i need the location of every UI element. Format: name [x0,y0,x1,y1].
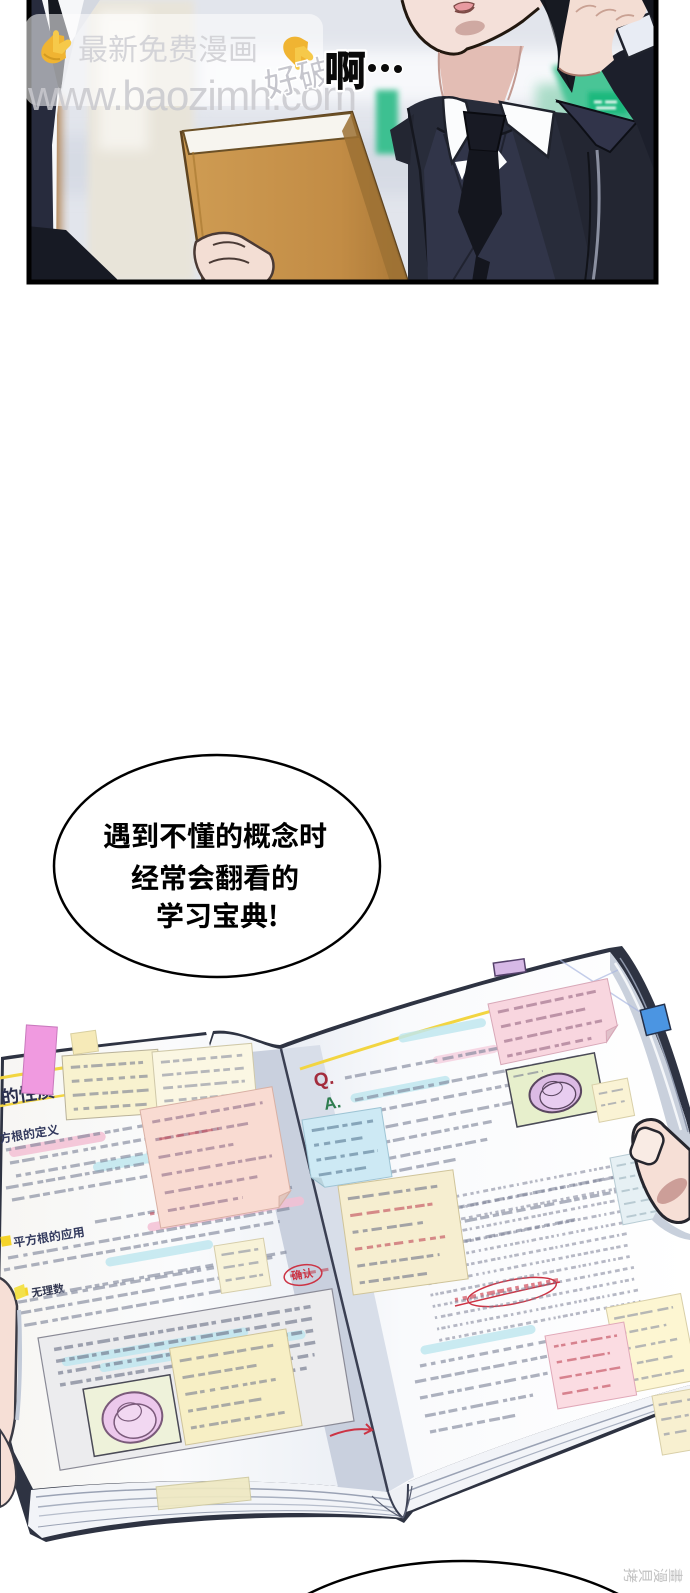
svg-text:A.: A. [322,1092,342,1114]
svg-text:Q.: Q. [312,1068,335,1092]
svg-text:www.baozimh.com: www.baozimh.com [27,72,356,119]
